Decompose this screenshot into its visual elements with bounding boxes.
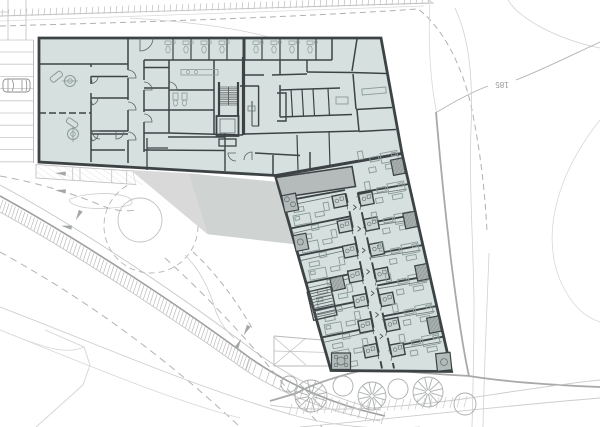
svg-text:185: 185 bbox=[495, 80, 509, 89]
